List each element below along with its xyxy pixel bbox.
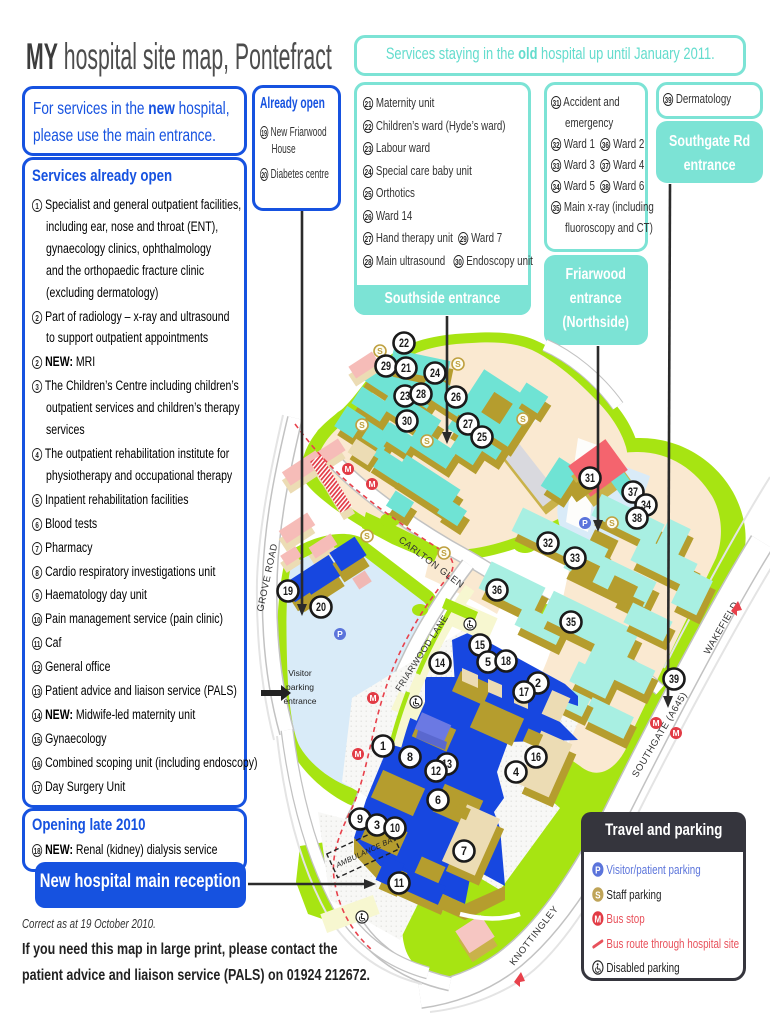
svg-text:35: 35	[566, 615, 576, 629]
svg-text:AMBULANCE BAY: AMBULANCE BAY	[334, 833, 399, 870]
svg-text:10: 10	[390, 821, 400, 835]
svg-text:S: S	[377, 346, 383, 356]
svg-text:26: 26	[451, 390, 461, 404]
svg-text:7: 7	[461, 844, 467, 858]
svg-text:M: M	[354, 749, 361, 759]
svg-text:25: 25	[477, 430, 487, 444]
svg-text:M: M	[594, 912, 601, 924]
svg-text:36: 36	[492, 583, 502, 597]
svg-text:3: 3	[374, 818, 380, 832]
svg-text:23: 23	[400, 389, 410, 403]
svg-text:S: S	[455, 359, 461, 369]
svg-text:22: 22	[399, 336, 409, 350]
svg-text:14: 14	[435, 656, 445, 670]
svg-text:20: 20	[316, 600, 326, 614]
svg-text:30: 30	[402, 414, 412, 428]
svg-text:S: S	[595, 888, 600, 900]
svg-text:S: S	[609, 518, 615, 528]
svg-text:29: 29	[381, 359, 391, 373]
svg-text:S: S	[441, 548, 447, 558]
svg-text:KNOTTINGLEY: KNOTTINGLEY	[508, 904, 561, 968]
svg-text:6: 6	[435, 793, 441, 807]
svg-text:37: 37	[628, 485, 638, 499]
svg-text:8: 8	[407, 750, 413, 764]
svg-text:31: 31	[585, 471, 595, 485]
svg-text:13: 13	[442, 757, 452, 771]
svg-text:S: S	[359, 420, 365, 430]
svg-text:28: 28	[416, 387, 426, 401]
svg-text:15: 15	[475, 638, 485, 652]
svg-text:2: 2	[535, 676, 541, 690]
svg-text:M: M	[344, 464, 351, 474]
svg-text:17: 17	[519, 685, 529, 699]
svg-text:M: M	[368, 479, 375, 489]
svg-text:CARLTON GLEN: CARLTON GLEN	[396, 535, 466, 591]
svg-text:SOUTHGATE (A645): SOUTHGATE (A645)	[630, 690, 690, 779]
svg-text:38: 38	[632, 511, 642, 525]
svg-text:39: 39	[669, 672, 679, 686]
svg-text:18: 18	[501, 654, 511, 668]
svg-text:11: 11	[394, 876, 404, 890]
svg-text:M: M	[672, 728, 679, 738]
svg-text:21: 21	[401, 361, 411, 375]
svg-text:P: P	[337, 629, 343, 639]
svg-text:FRIARWOOD LANE: FRIARWOOD LANE	[393, 613, 450, 693]
svg-text:27: 27	[463, 417, 473, 431]
svg-text:33: 33	[570, 551, 580, 565]
svg-text:S: S	[520, 414, 526, 424]
svg-text:M: M	[652, 718, 659, 728]
svg-text:24: 24	[430, 366, 440, 380]
svg-text:5: 5	[485, 655, 491, 669]
svg-text:S: S	[364, 531, 370, 541]
svg-text:P: P	[595, 863, 600, 875]
svg-text:16: 16	[531, 750, 541, 764]
svg-text:32: 32	[543, 536, 553, 550]
svg-text:P: P	[582, 518, 588, 528]
svg-text:34: 34	[641, 498, 651, 512]
svg-text:S: S	[424, 436, 430, 446]
svg-text:9: 9	[357, 812, 363, 826]
svg-text:1: 1	[380, 739, 386, 753]
svg-text:4: 4	[513, 765, 519, 779]
svg-text:WAKEFIELD: WAKEFIELD	[702, 600, 741, 657]
svg-text:12: 12	[431, 764, 441, 778]
svg-text:M: M	[369, 693, 376, 703]
